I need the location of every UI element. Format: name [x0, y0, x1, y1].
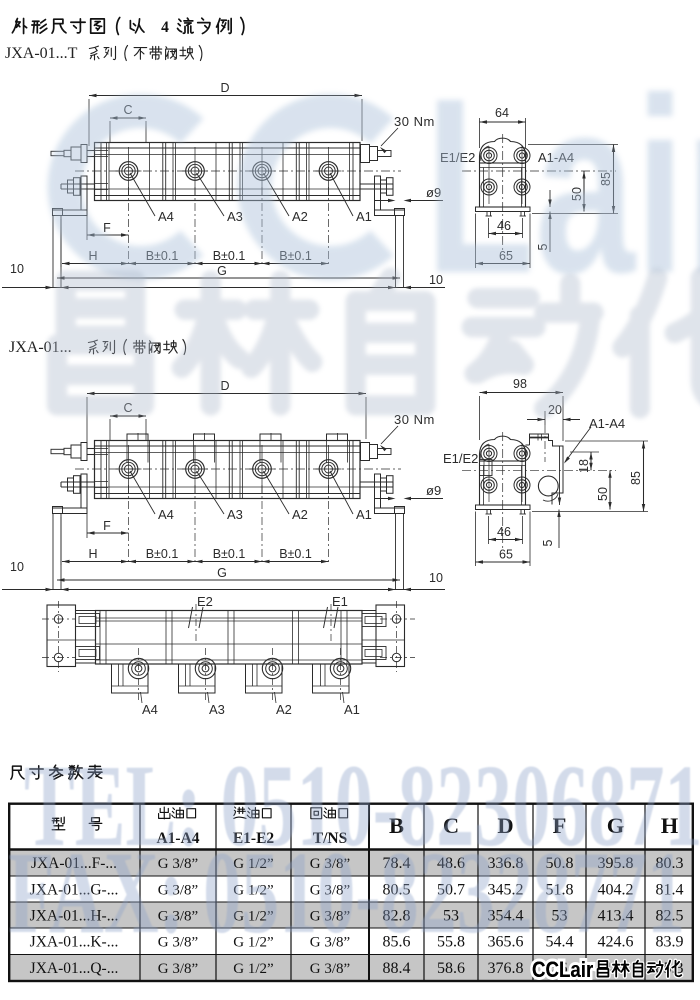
- svg-text:E2: E2: [197, 594, 213, 609]
- svg-text:E1: E1: [332, 594, 348, 609]
- svg-text:A4: A4: [158, 209, 174, 224]
- svg-text:G 3/8”: G 3/8”: [310, 961, 350, 977]
- svg-text:E1/E2: E1/E2: [443, 451, 478, 466]
- svg-text:CCLair: CCLair: [532, 959, 593, 983]
- svg-text:85: 85: [629, 471, 643, 485]
- svg-text:5: 5: [541, 539, 555, 546]
- svg-text:4: 4: [161, 19, 169, 36]
- svg-text:65: 65: [499, 548, 513, 562]
- svg-text:H: H: [88, 547, 97, 561]
- svg-text:46: 46: [497, 525, 511, 539]
- svg-text:50: 50: [596, 487, 610, 501]
- svg-text:A2: A2: [276, 702, 292, 717]
- svg-text:G 1/2”: G 1/2”: [233, 961, 273, 977]
- svg-text:A1-A4: A1-A4: [589, 416, 625, 431]
- svg-text:A1: A1: [356, 209, 372, 224]
- svg-text:ø9: ø9: [426, 483, 441, 498]
- svg-text:A3: A3: [227, 209, 243, 224]
- svg-text:F: F: [103, 519, 111, 533]
- svg-text:10: 10: [429, 571, 443, 585]
- svg-text:D: D: [220, 81, 229, 95]
- svg-text:JXA-01...T: JXA-01...T: [5, 45, 78, 62]
- svg-text:A3: A3: [209, 702, 225, 717]
- svg-text:B±0.1: B±0.1: [213, 249, 246, 263]
- svg-text:FAX: 0510-82328771: FAX: 0510-82328771: [8, 829, 685, 959]
- svg-text:A3: A3: [227, 507, 243, 522]
- svg-text:10: 10: [10, 262, 24, 276]
- svg-text:JXA-01...Q-...: JXA-01...Q-...: [30, 960, 119, 977]
- svg-text:18: 18: [577, 459, 591, 473]
- svg-text:A1: A1: [344, 702, 360, 717]
- svg-text:D: D: [220, 379, 229, 393]
- svg-text:58.6: 58.6: [437, 960, 465, 977]
- svg-text:88.4: 88.4: [383, 960, 411, 977]
- svg-text:A4: A4: [142, 702, 158, 717]
- svg-text:F: F: [103, 221, 111, 235]
- svg-text:B±0.1: B±0.1: [279, 547, 312, 561]
- svg-text:G 3/8”: G 3/8”: [158, 961, 198, 977]
- svg-text:B±0.1: B±0.1: [146, 547, 179, 561]
- svg-text:376.8: 376.8: [488, 960, 524, 977]
- svg-text:A2: A2: [292, 507, 308, 522]
- svg-text:98: 98: [513, 377, 527, 391]
- svg-text:A2: A2: [292, 209, 308, 224]
- svg-text:10: 10: [10, 560, 24, 574]
- svg-text:A1: A1: [356, 507, 372, 522]
- svg-text:B±0.1: B±0.1: [213, 547, 246, 561]
- svg-text:G: G: [217, 566, 227, 580]
- svg-text:A4: A4: [158, 507, 174, 522]
